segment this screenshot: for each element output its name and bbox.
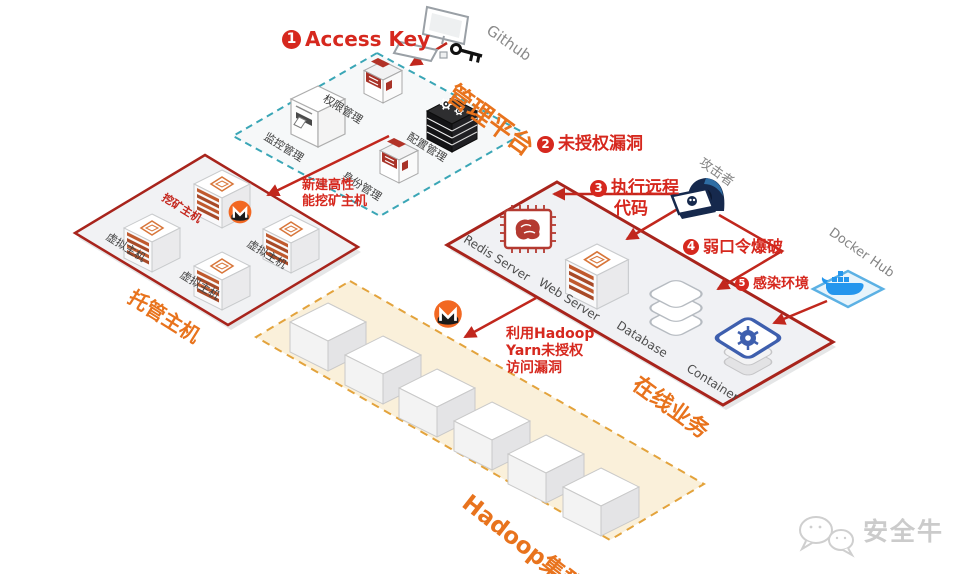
access-key-icon	[452, 45, 483, 63]
step5-badge: 5	[735, 277, 749, 291]
monero-icon	[434, 300, 462, 328]
step1-badge: 1	[282, 30, 301, 49]
brand-watermark: 安全牛	[793, 512, 944, 548]
monitoring-icon	[291, 86, 345, 147]
step2-unauthorized-vuln: 2 未授权漏洞	[537, 135, 643, 155]
step4-weak-password: 4 弱口令爆破	[683, 238, 783, 256]
new-mining-host-note: 新建高性 能挖矿主机	[302, 178, 367, 210]
step4-badge: 4	[683, 239, 699, 255]
step2-badge: 2	[537, 136, 554, 153]
step1-access-key: 1 Access Key	[282, 28, 430, 51]
diagram-canvas	[0, 0, 966, 574]
step3-remote-code: 3 执行远程 代码	[590, 177, 679, 219]
step3-badge: 3	[590, 180, 607, 197]
step5-infect-env: 5 感染环境	[735, 276, 809, 292]
attacker-icon	[672, 178, 724, 219]
hadoop-vuln-note: 利用Hadoop Yarn未授权 访问漏洞	[506, 326, 594, 377]
redis-chip-icon	[500, 205, 556, 253]
monero-icon	[229, 201, 252, 224]
brand-name: 安全牛	[863, 512, 944, 548]
attack-flow-diagram: Github 1 Access Key 管理平台 监控管理 权限管理 配置管理 …	[0, 0, 966, 574]
